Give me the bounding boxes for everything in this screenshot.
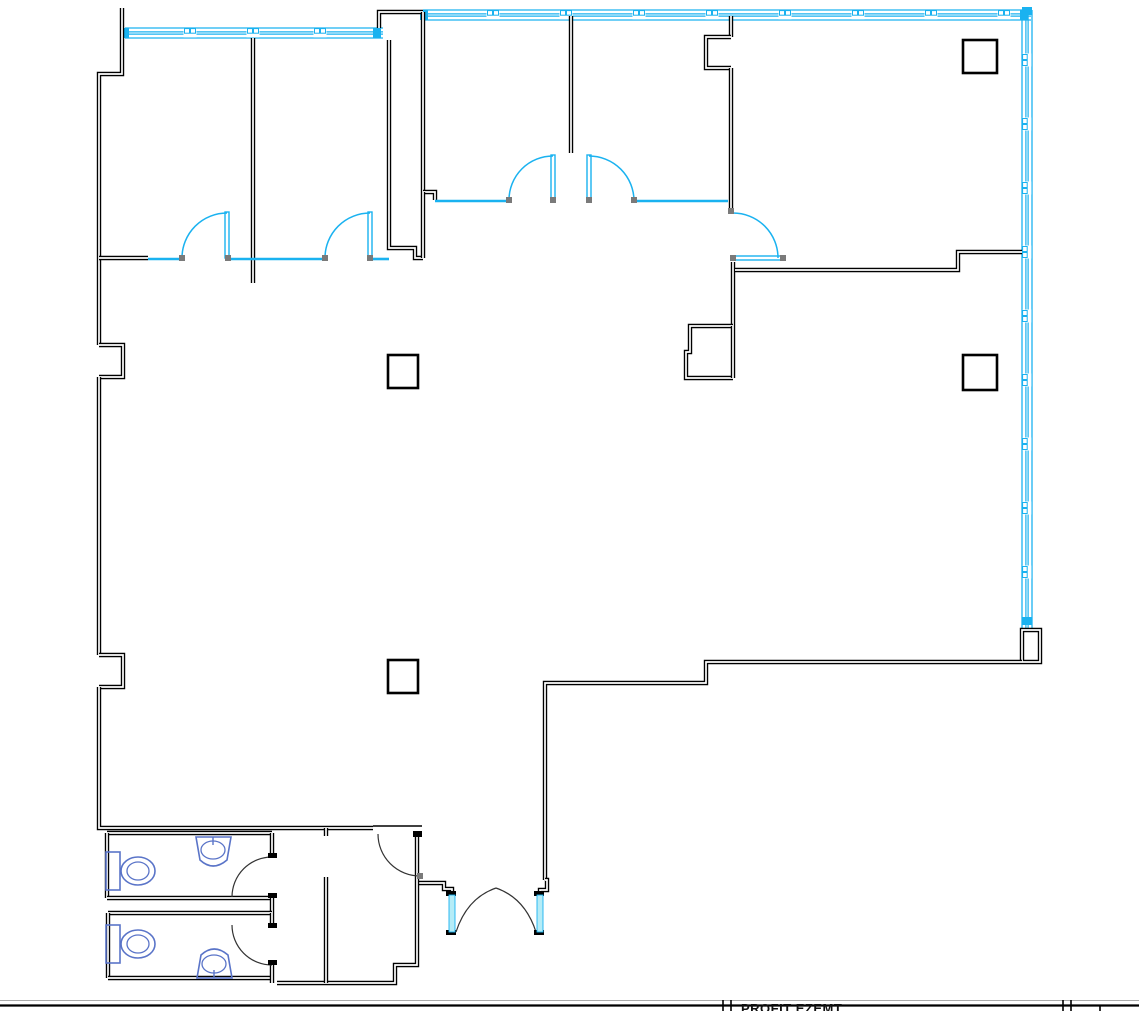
door-jamb-cap: [268, 923, 277, 928]
column: [963, 40, 997, 73]
window-mullion-mark: [191, 29, 196, 34]
wall-core: [99, 345, 123, 377]
window-mullion-mark: [1023, 189, 1028, 194]
toilet-seat: [127, 862, 149, 880]
title-block-label: PROFIT EZEMT: [741, 1001, 842, 1011]
window-mullion-mark: [185, 29, 190, 34]
window-mullion-mark: [567, 11, 572, 16]
wall-core: [99, 655, 123, 687]
window-mullion-mark: [254, 29, 259, 34]
window-mullion-mark: [713, 11, 718, 16]
column: [388, 660, 418, 693]
window-mullion-mark: [1023, 55, 1028, 60]
wall-segment: [389, 40, 423, 258]
door-stop: [417, 873, 423, 879]
floor-plan-sheet: PROFIT EZEMT: [0, 0, 1139, 1011]
window-mullion-mark: [1023, 125, 1028, 130]
window-mullion-mark: [1023, 317, 1028, 322]
wall-core: [379, 12, 423, 28]
door-swing-arc: [182, 213, 227, 258]
entry-sidelight: [537, 895, 543, 932]
wall-core: [99, 687, 373, 828]
wall-segment: [99, 655, 123, 687]
wall-segment: [706, 37, 731, 68]
window-mullion-mark: [1023, 119, 1028, 124]
window-mullion-mark: [1023, 445, 1028, 450]
door-jamb-cap: [268, 960, 277, 965]
door-swing-arc-dark: [378, 834, 420, 876]
window-mullion-mark: [634, 11, 639, 16]
wall-segment: [99, 8, 122, 345]
door-leaf: [735, 256, 783, 260]
window-mullion-mark: [859, 11, 864, 16]
door-stop: [225, 255, 231, 261]
window-mullion-mark: [1023, 375, 1028, 380]
window-mullion-mark: [1023, 247, 1028, 252]
window-mullion-mark: [932, 11, 937, 16]
door-swing-arc: [509, 156, 553, 200]
window-mullion-mark: [1023, 253, 1028, 258]
door-leaf: [587, 155, 591, 200]
window-mullion-mark: [1005, 11, 1010, 16]
wall-segment: [277, 877, 417, 983]
door-stop: [506, 197, 512, 203]
door-stop: [730, 255, 736, 261]
window-mullion-mark: [315, 29, 320, 34]
wall-segment: [99, 345, 123, 377]
floor-plan-canvas: [0, 0, 1139, 1011]
window-band-cap: [1022, 617, 1032, 625]
window-mullion-mark: [853, 11, 858, 16]
window-mullion-mark: [926, 11, 931, 16]
window-mullion-mark: [1023, 311, 1028, 316]
window-mullion-mark: [561, 11, 566, 16]
window-mullion-mark: [1023, 567, 1028, 572]
door-stop: [780, 255, 786, 261]
door-stop: [586, 197, 592, 203]
window-mullion-mark: [494, 11, 499, 16]
window-band-cap: [1022, 7, 1032, 15]
column: [963, 355, 997, 390]
window-mullion-mark: [1023, 439, 1028, 444]
wall-core: [686, 326, 733, 378]
window-mullion-mark: [1023, 61, 1028, 66]
wall-core: [706, 37, 731, 68]
door-stop: [322, 255, 328, 261]
window-mullion-mark: [1023, 503, 1028, 508]
wall-segment: [686, 326, 733, 378]
door-swing-arc-dark: [232, 857, 272, 897]
wall-core: [545, 662, 1022, 880]
door-leaf: [551, 155, 555, 200]
door-stop: [550, 197, 556, 203]
window-mullion-mark: [1023, 183, 1028, 188]
wall-core: [389, 40, 423, 258]
toilet-seat: [127, 935, 149, 953]
wall-segment: [1022, 630, 1040, 662]
toilet-bowl: [121, 857, 155, 885]
wall-segment: [99, 687, 373, 828]
door-jamb-cap: [268, 853, 277, 858]
window-mullion-mark: [248, 29, 253, 34]
door-jamb-cap: [268, 893, 277, 898]
window-mullion-mark: [1023, 509, 1028, 514]
wall-core: [1022, 630, 1040, 662]
window-mullion-mark: [707, 11, 712, 16]
door-swing-arc-dark: [232, 925, 272, 965]
door-stop: [367, 255, 373, 261]
door-jamb-cap: [413, 831, 422, 837]
wall-segment: [545, 662, 1022, 880]
entry-sidelight: [449, 895, 455, 932]
door-leaf: [225, 212, 229, 258]
window-band-cap: [373, 28, 381, 38]
window-mullion-mark: [786, 11, 791, 16]
door-leaf: [368, 212, 372, 258]
window-mullion-mark: [780, 11, 785, 16]
door-swing-arc: [325, 213, 370, 258]
door-swing-arc: [733, 213, 778, 258]
window-mullion-mark: [999, 11, 1004, 16]
door-stop: [631, 197, 637, 203]
door-swing-arc-dark: [496, 888, 536, 932]
wall-segment: [379, 12, 423, 28]
door-swing-arc: [589, 156, 634, 201]
toilet-bowl: [121, 930, 155, 958]
door-stop: [179, 255, 185, 261]
window-mullion-mark: [1023, 573, 1028, 578]
window-mullion-mark: [321, 29, 326, 34]
wall-core: [99, 8, 122, 345]
window-mullion-mark: [488, 11, 493, 16]
window-mullion-mark: [640, 11, 645, 16]
door-stop: [728, 208, 734, 214]
window-mullion-mark: [1023, 381, 1028, 386]
door-swing-arc-dark: [456, 888, 496, 932]
column: [388, 355, 418, 388]
